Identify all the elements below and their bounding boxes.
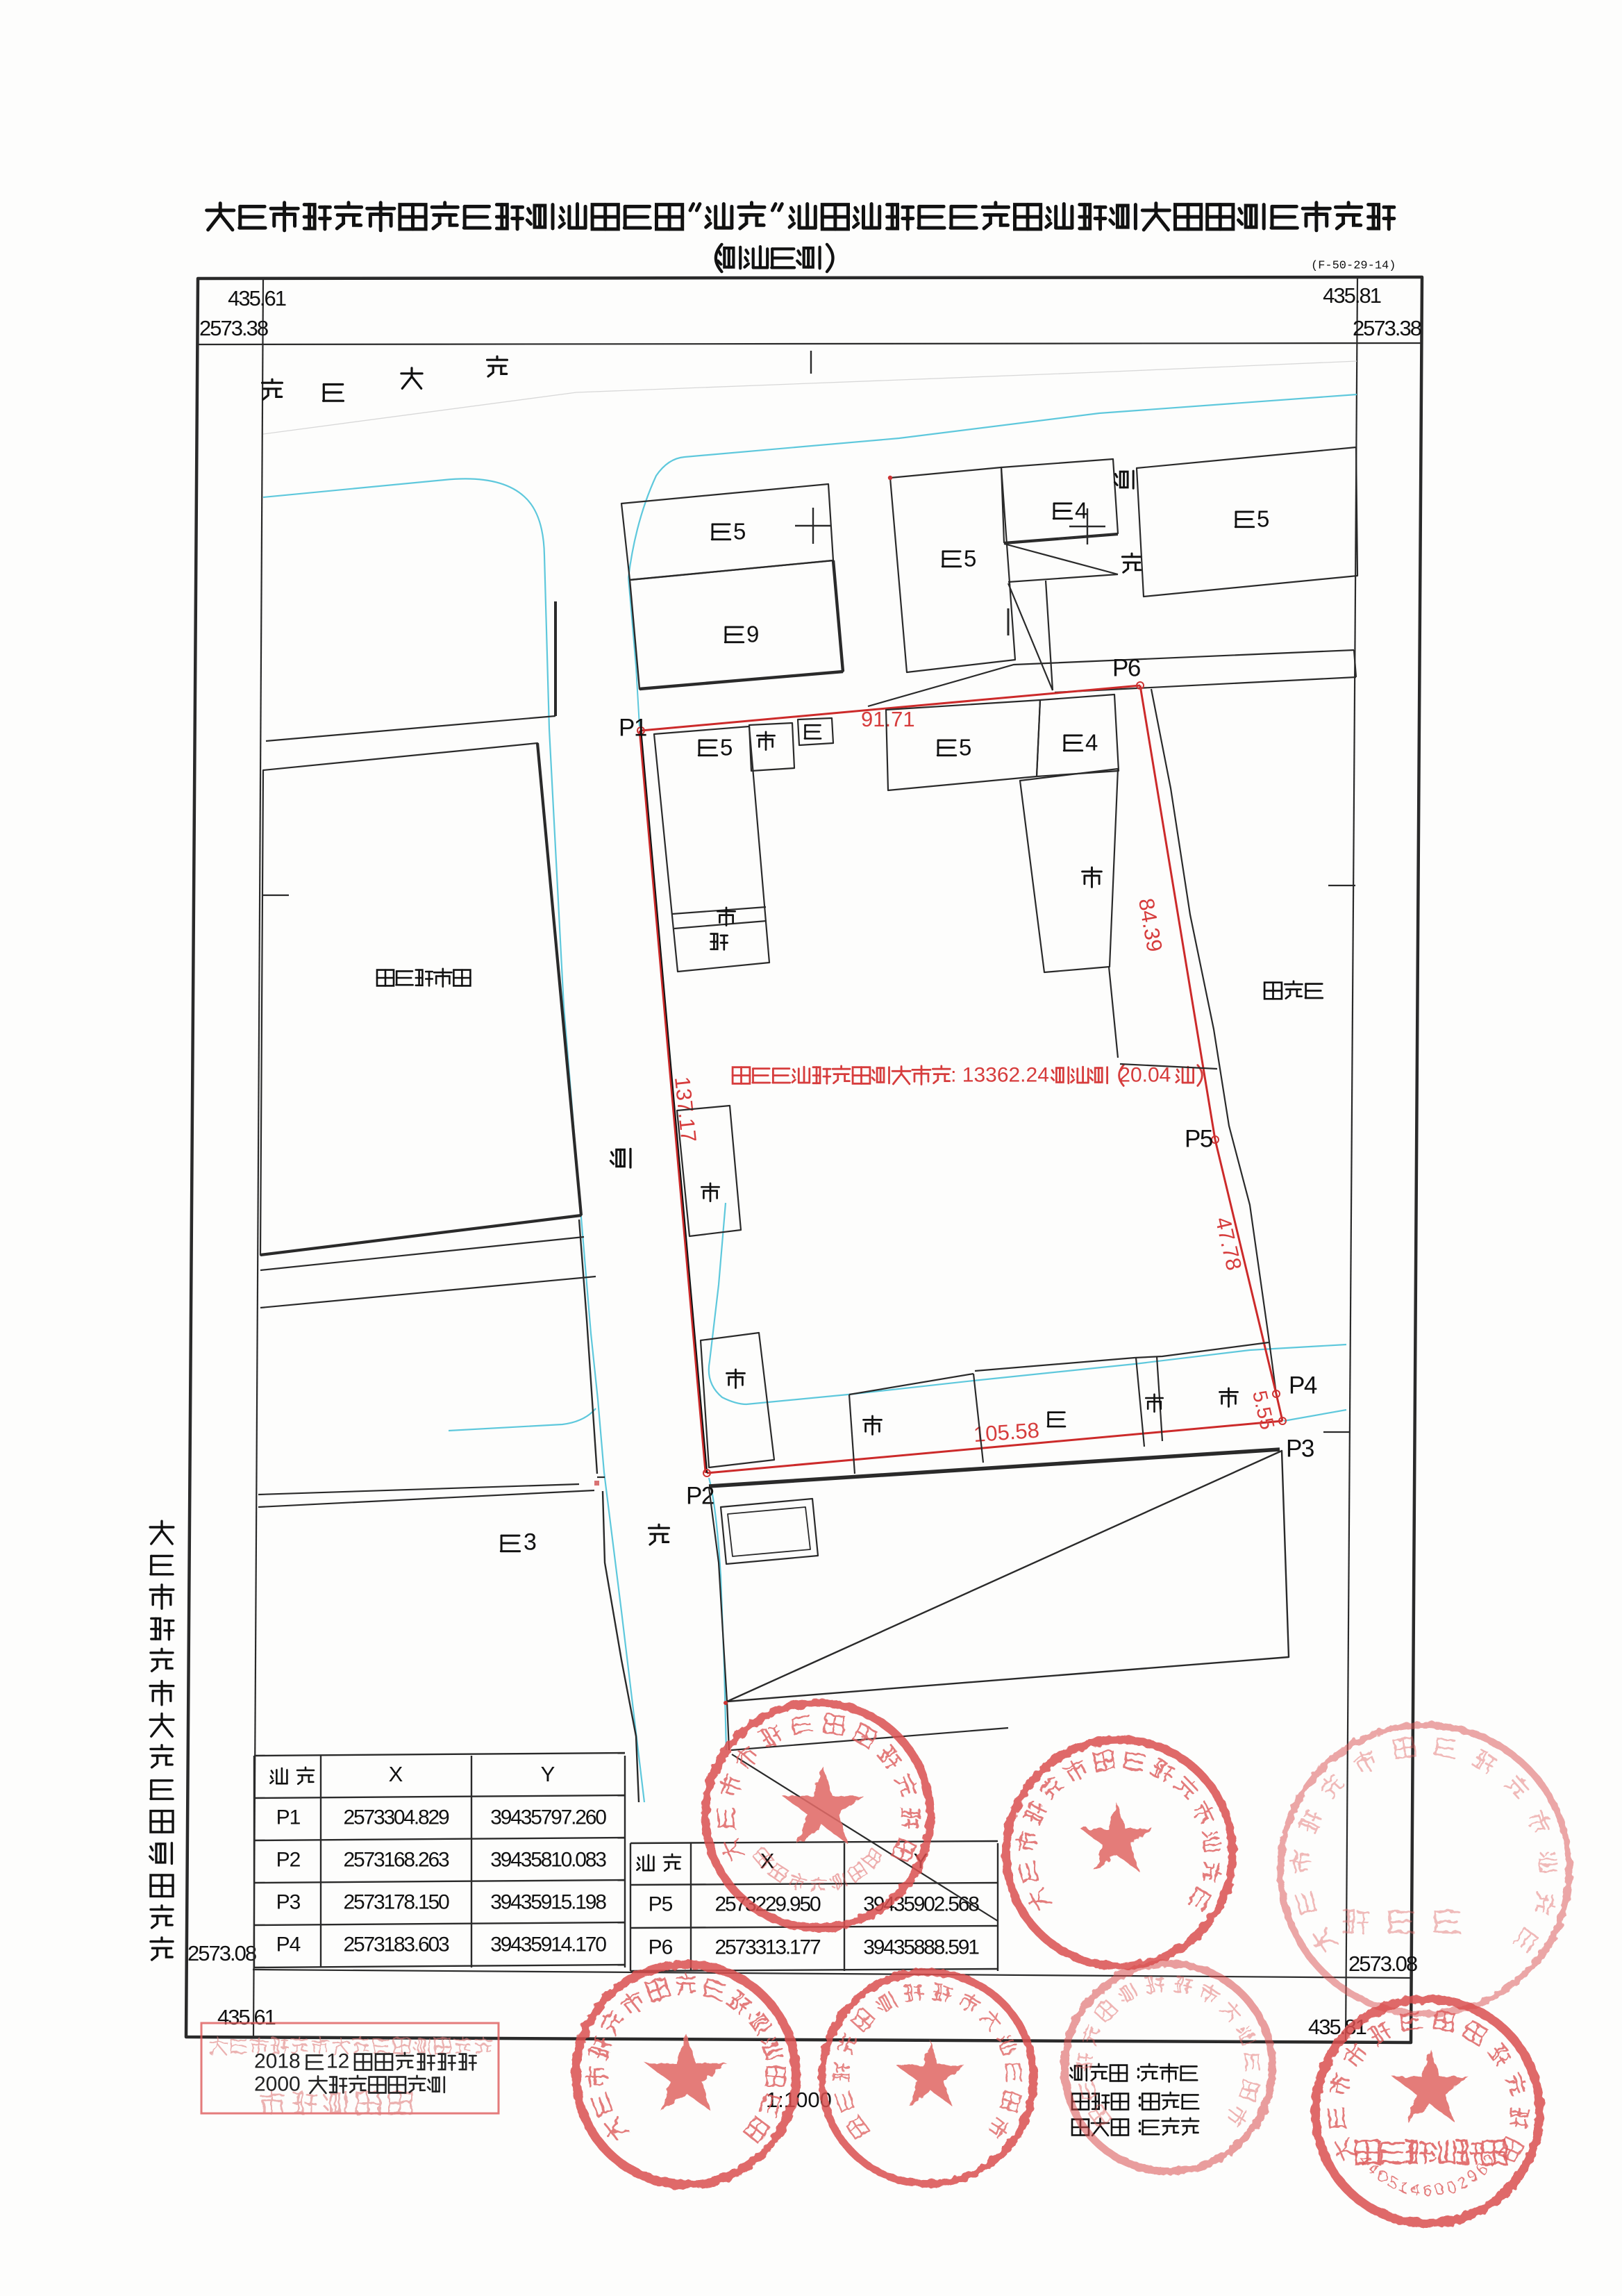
svg-text:P6: P6 <box>649 1936 673 1958</box>
svg-text:435.61: 435.61 <box>217 2005 276 2029</box>
svg-text:5: 5 <box>733 519 746 544</box>
svg-text:91.71: 91.71 <box>861 707 915 731</box>
svg-text:X: X <box>389 1762 403 1786</box>
svg-text:2573.08: 2573.08 <box>1348 1952 1417 1976</box>
svg-text:P4: P4 <box>1289 1372 1317 1399</box>
svg-text:2573.38: 2573.38 <box>199 316 268 340</box>
svg-text:: 13362.24: : 13362.24 <box>951 1063 1049 1086</box>
svg-text:39435888.591: 39435888.591 <box>863 1936 979 1958</box>
svg-text:2573168.263: 2573168.263 <box>344 1848 449 1871</box>
svg-text:12: 12 <box>326 2049 349 2072</box>
svg-text:2573.08: 2573.08 <box>187 1941 256 1965</box>
svg-text:4: 4 <box>1075 498 1087 524</box>
svg-text:P4: P4 <box>276 1933 301 1956</box>
svg-text:5: 5 <box>1257 506 1269 532</box>
svg-text:39435914.170: 39435914.170 <box>490 1933 606 1956</box>
svg-text:5: 5 <box>964 546 976 572</box>
svg-text:4: 4 <box>1085 730 1098 756</box>
svg-text:6: 6 <box>1423 2181 1432 2199</box>
svg-text:5: 5 <box>959 735 971 760</box>
svg-text:9: 9 <box>746 622 759 647</box>
svg-text:39435810.083: 39435810.083 <box>490 1848 606 1871</box>
svg-text:20.04: 20.04 <box>1119 1063 1171 1086</box>
svg-text:P5: P5 <box>649 1892 673 1915</box>
svg-text:435.81: 435.81 <box>1323 283 1381 308</box>
svg-text:435.61: 435.61 <box>228 286 286 310</box>
svg-text:39435797.260: 39435797.260 <box>490 1806 606 1829</box>
svg-text:P1: P1 <box>619 714 646 741</box>
svg-text:P6: P6 <box>1112 654 1140 681</box>
svg-text:P5: P5 <box>1185 1125 1212 1152</box>
svg-text:2018: 2018 <box>254 2049 301 2072</box>
svg-text:P1: P1 <box>276 1806 301 1829</box>
svg-text:3: 3 <box>524 1529 537 1556</box>
svg-text:2573183.603: 2573183.603 <box>344 1933 449 1956</box>
svg-text:(F-50-29-14): (F-50-29-14) <box>1311 259 1396 272</box>
svg-text:Y: Y <box>541 1762 555 1786</box>
svg-text:P3: P3 <box>276 1890 301 1913</box>
svg-text:2000: 2000 <box>254 2072 301 2095</box>
svg-text:P3: P3 <box>1286 1435 1314 1462</box>
svg-text:2573.38: 2573.38 <box>1353 316 1421 340</box>
svg-text:2573304.829: 2573304.829 <box>344 1806 449 1829</box>
svg-text:5: 5 <box>720 735 733 760</box>
svg-text:105.58: 105.58 <box>973 1418 1040 1447</box>
svg-text:39435915.198: 39435915.198 <box>490 1890 606 1913</box>
svg-text:2573178.150: 2573178.150 <box>344 1890 449 1913</box>
svg-text:P2: P2 <box>276 1848 301 1871</box>
svg-text:2573313.177: 2573313.177 <box>715 1936 821 1958</box>
